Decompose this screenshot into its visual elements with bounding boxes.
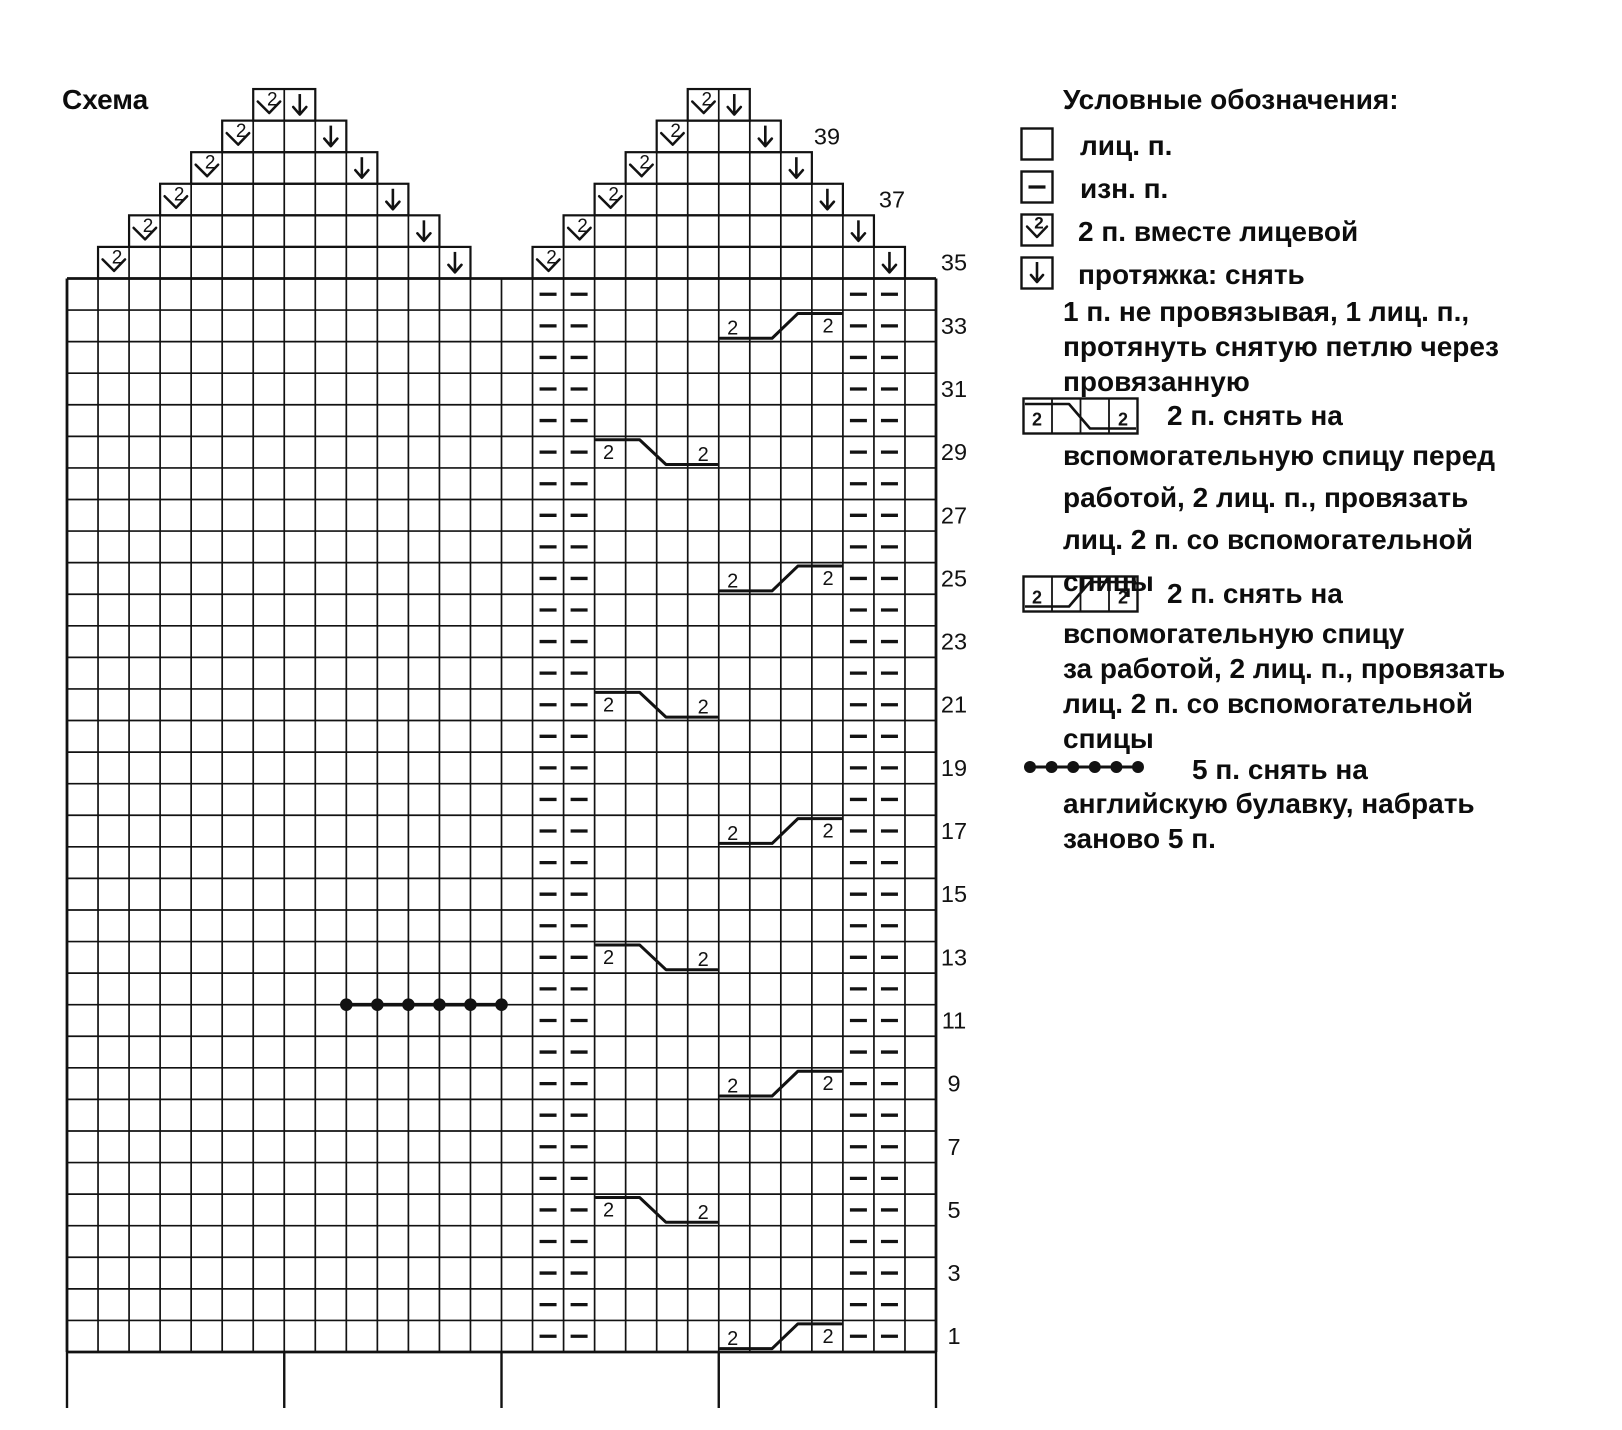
row-label: 7 [947, 1134, 960, 1160]
legend-text: вспомогательную спицу перед [1063, 441, 1495, 470]
cable-count: 2 [822, 315, 833, 337]
legend-text: лиц. п. [1080, 131, 1172, 160]
legend-text: 2 п. снять на [1167, 579, 1343, 608]
row-label: 15 [941, 881, 967, 907]
row-label: 21 [941, 692, 967, 718]
cable-back-icon: 2 2 [1022, 575, 1139, 613]
legend-text: работой, 2 лиц. п., провязать [1063, 483, 1468, 512]
row-label: 11 [942, 1007, 966, 1033]
legend-title: Условные обозначения: [1063, 84, 1399, 116]
legend-text: изн. п. [1080, 174, 1168, 203]
legend-text: заново 5 п. [1063, 824, 1216, 853]
legend-text: протяжка: снять [1078, 260, 1305, 289]
row-label: 27 [941, 502, 967, 528]
row-label: 19 [941, 755, 967, 781]
cable-front-icon: 2 2 [1022, 397, 1139, 435]
left-triangle: 222222 [98, 89, 470, 278]
knitting-pattern-page: Схема 2222222222222222222222222222223937… [0, 0, 1622, 1430]
legend-text: 5 п. снять на [1192, 755, 1368, 784]
legend-text: провязанную [1063, 367, 1250, 396]
svg-text:2: 2 [1118, 588, 1128, 608]
svg-text:2: 2 [1118, 410, 1128, 430]
legend-text: 2 п. снять на [1167, 401, 1343, 430]
cable-count: 2 [727, 1076, 738, 1098]
svg-text:2: 2 [1032, 588, 1042, 608]
cable-count: 2 [727, 1328, 738, 1350]
row-label: 29 [941, 439, 967, 465]
row-label: 35 [941, 250, 967, 276]
row-label: 31 [941, 376, 967, 402]
svg-text:2: 2 [1032, 410, 1042, 430]
cable-count: 2 [822, 568, 833, 590]
safety-pin-marker [340, 998, 508, 1011]
legend-text: лиц. 2 п. со вспомогательной [1063, 689, 1473, 718]
legend-text: протянуть снятую петлю через [1063, 332, 1499, 361]
legend-text: спицы [1063, 724, 1154, 753]
row-label: 25 [941, 565, 967, 591]
cable-count: 2 [698, 444, 709, 466]
cable-count: 2 [727, 823, 738, 845]
row-label: 37 [879, 187, 905, 213]
svg-text:2: 2 [1034, 214, 1043, 233]
k2tog-square-icon: 2 [1020, 213, 1054, 247]
cable-count: 2 [822, 821, 833, 843]
cable-count: 2 [603, 694, 614, 716]
repeat-ticks [67, 1352, 936, 1408]
cable-count: 2 [603, 1200, 614, 1222]
legend-text: 2 п. вместе лицевой [1078, 217, 1358, 246]
row-label: 23 [941, 629, 967, 655]
legend-text: лиц. 2 п. со вспомогательной [1063, 525, 1473, 554]
main-grid [67, 278, 936, 1352]
row-label: 3 [947, 1260, 960, 1286]
cable-count: 2 [698, 697, 709, 719]
row-label: 17 [941, 818, 967, 844]
cable-count: 2 [603, 442, 614, 464]
safety-pin-dots-icon [1022, 755, 1146, 779]
legend-text: вспомогательную спицу [1063, 619, 1404, 648]
row-label: 13 [941, 944, 967, 970]
cable-count: 2 [698, 1202, 709, 1224]
row-label: 33 [941, 313, 967, 339]
row-label: 39 [814, 123, 840, 149]
row-label: 9 [947, 1071, 960, 1097]
knit-square-icon [1020, 127, 1054, 161]
cable-count: 2 [603, 947, 614, 969]
right-triangle: 222222 [533, 89, 905, 278]
legend-text: английскую булавку, набрать [1063, 789, 1475, 818]
legend-text: 1 п. не провязывая, 1 лиц. п., [1063, 297, 1469, 326]
knitting-chart: 2222222222222222222222222222223937353331… [0, 0, 1000, 1430]
row-label: 1 [947, 1323, 960, 1349]
cable-count: 2 [698, 949, 709, 971]
slip-arrow-square-icon [1020, 256, 1054, 290]
cable-count: 2 [822, 1326, 833, 1348]
cable-count: 2 [822, 1073, 833, 1095]
legend-text: за работой, 2 лиц. п., провязать [1063, 654, 1505, 683]
cable-count: 2 [727, 570, 738, 592]
cable-count: 2 [727, 318, 738, 340]
row-label: 5 [947, 1197, 960, 1223]
purl-square-icon [1020, 170, 1054, 204]
